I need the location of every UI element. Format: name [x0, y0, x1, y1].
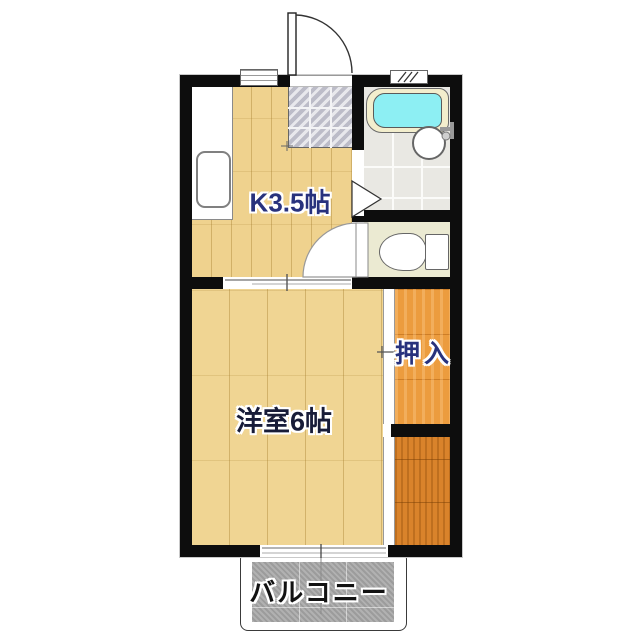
vent: [390, 70, 428, 84]
entrance-door-swing-arc: [296, 15, 352, 73]
entrance-threshold: [290, 75, 352, 87]
outer-wall: [180, 75, 462, 557]
room-sliding-door-opening: [223, 277, 352, 289]
balcony-window: [260, 545, 388, 557]
kitchen-sink: [196, 151, 231, 208]
toilet-door-opening: [352, 222, 364, 277]
bathtub: [373, 93, 442, 128]
entrance-door: [288, 13, 296, 75]
toilet-bowl: [379, 233, 427, 271]
balcony-label: バルコニー: [249, 573, 388, 610]
toilet-tank: [425, 234, 449, 270]
wall-kitchen-room-left: [192, 277, 223, 289]
bathroom-door-opening: [352, 150, 364, 216]
kitchen-label: K3.5帖: [250, 183, 331, 220]
floor-plan: K3.5帖 洋室6帖 押入 バルコニー: [0, 0, 640, 640]
wall-bath-toilet: [352, 210, 450, 222]
top-window: [240, 69, 278, 86]
closet-label: 押入: [395, 334, 453, 370]
western-room-label: 洋室6帖: [236, 400, 332, 439]
wall-kitchen-room-right: [352, 277, 450, 289]
wall-closet-divider: [391, 424, 450, 437]
